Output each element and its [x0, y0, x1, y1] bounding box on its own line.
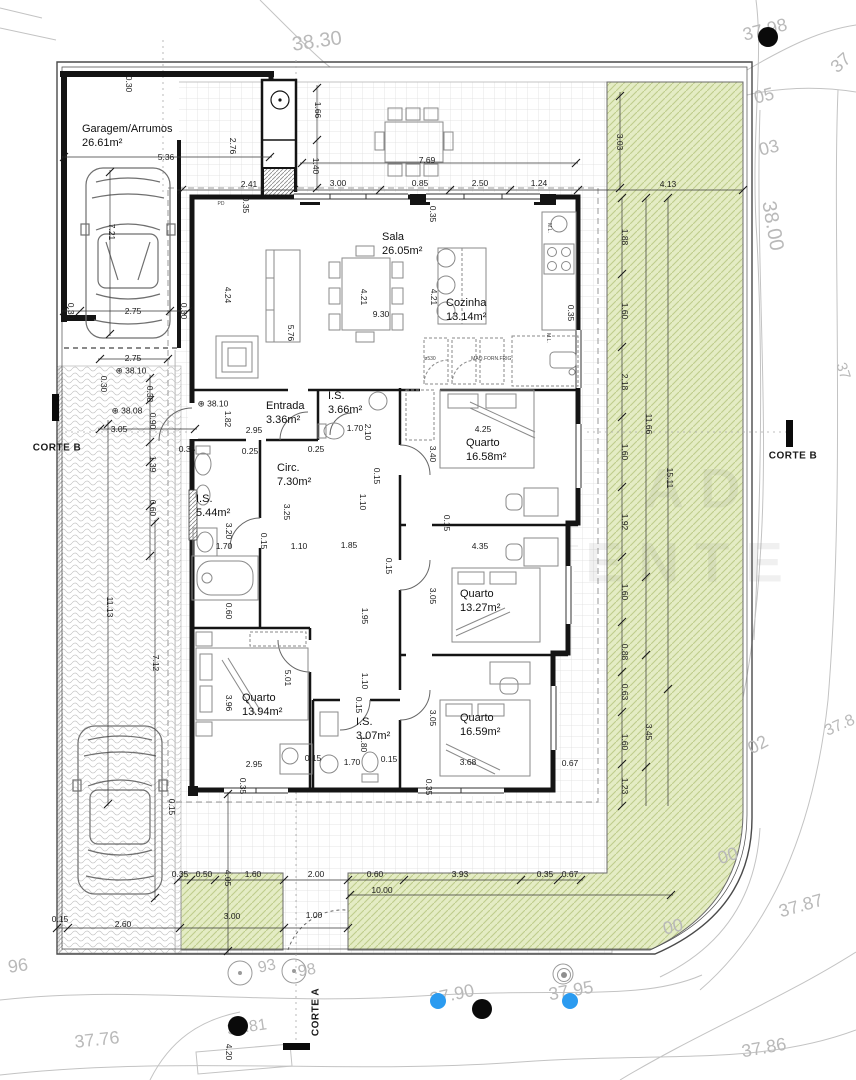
trees: [228, 959, 573, 985]
plan-drawing: [0, 0, 856, 1080]
floor-plan-canvas: 0.301.665.362.767.691.402.413.000.852.50…: [0, 0, 856, 1080]
